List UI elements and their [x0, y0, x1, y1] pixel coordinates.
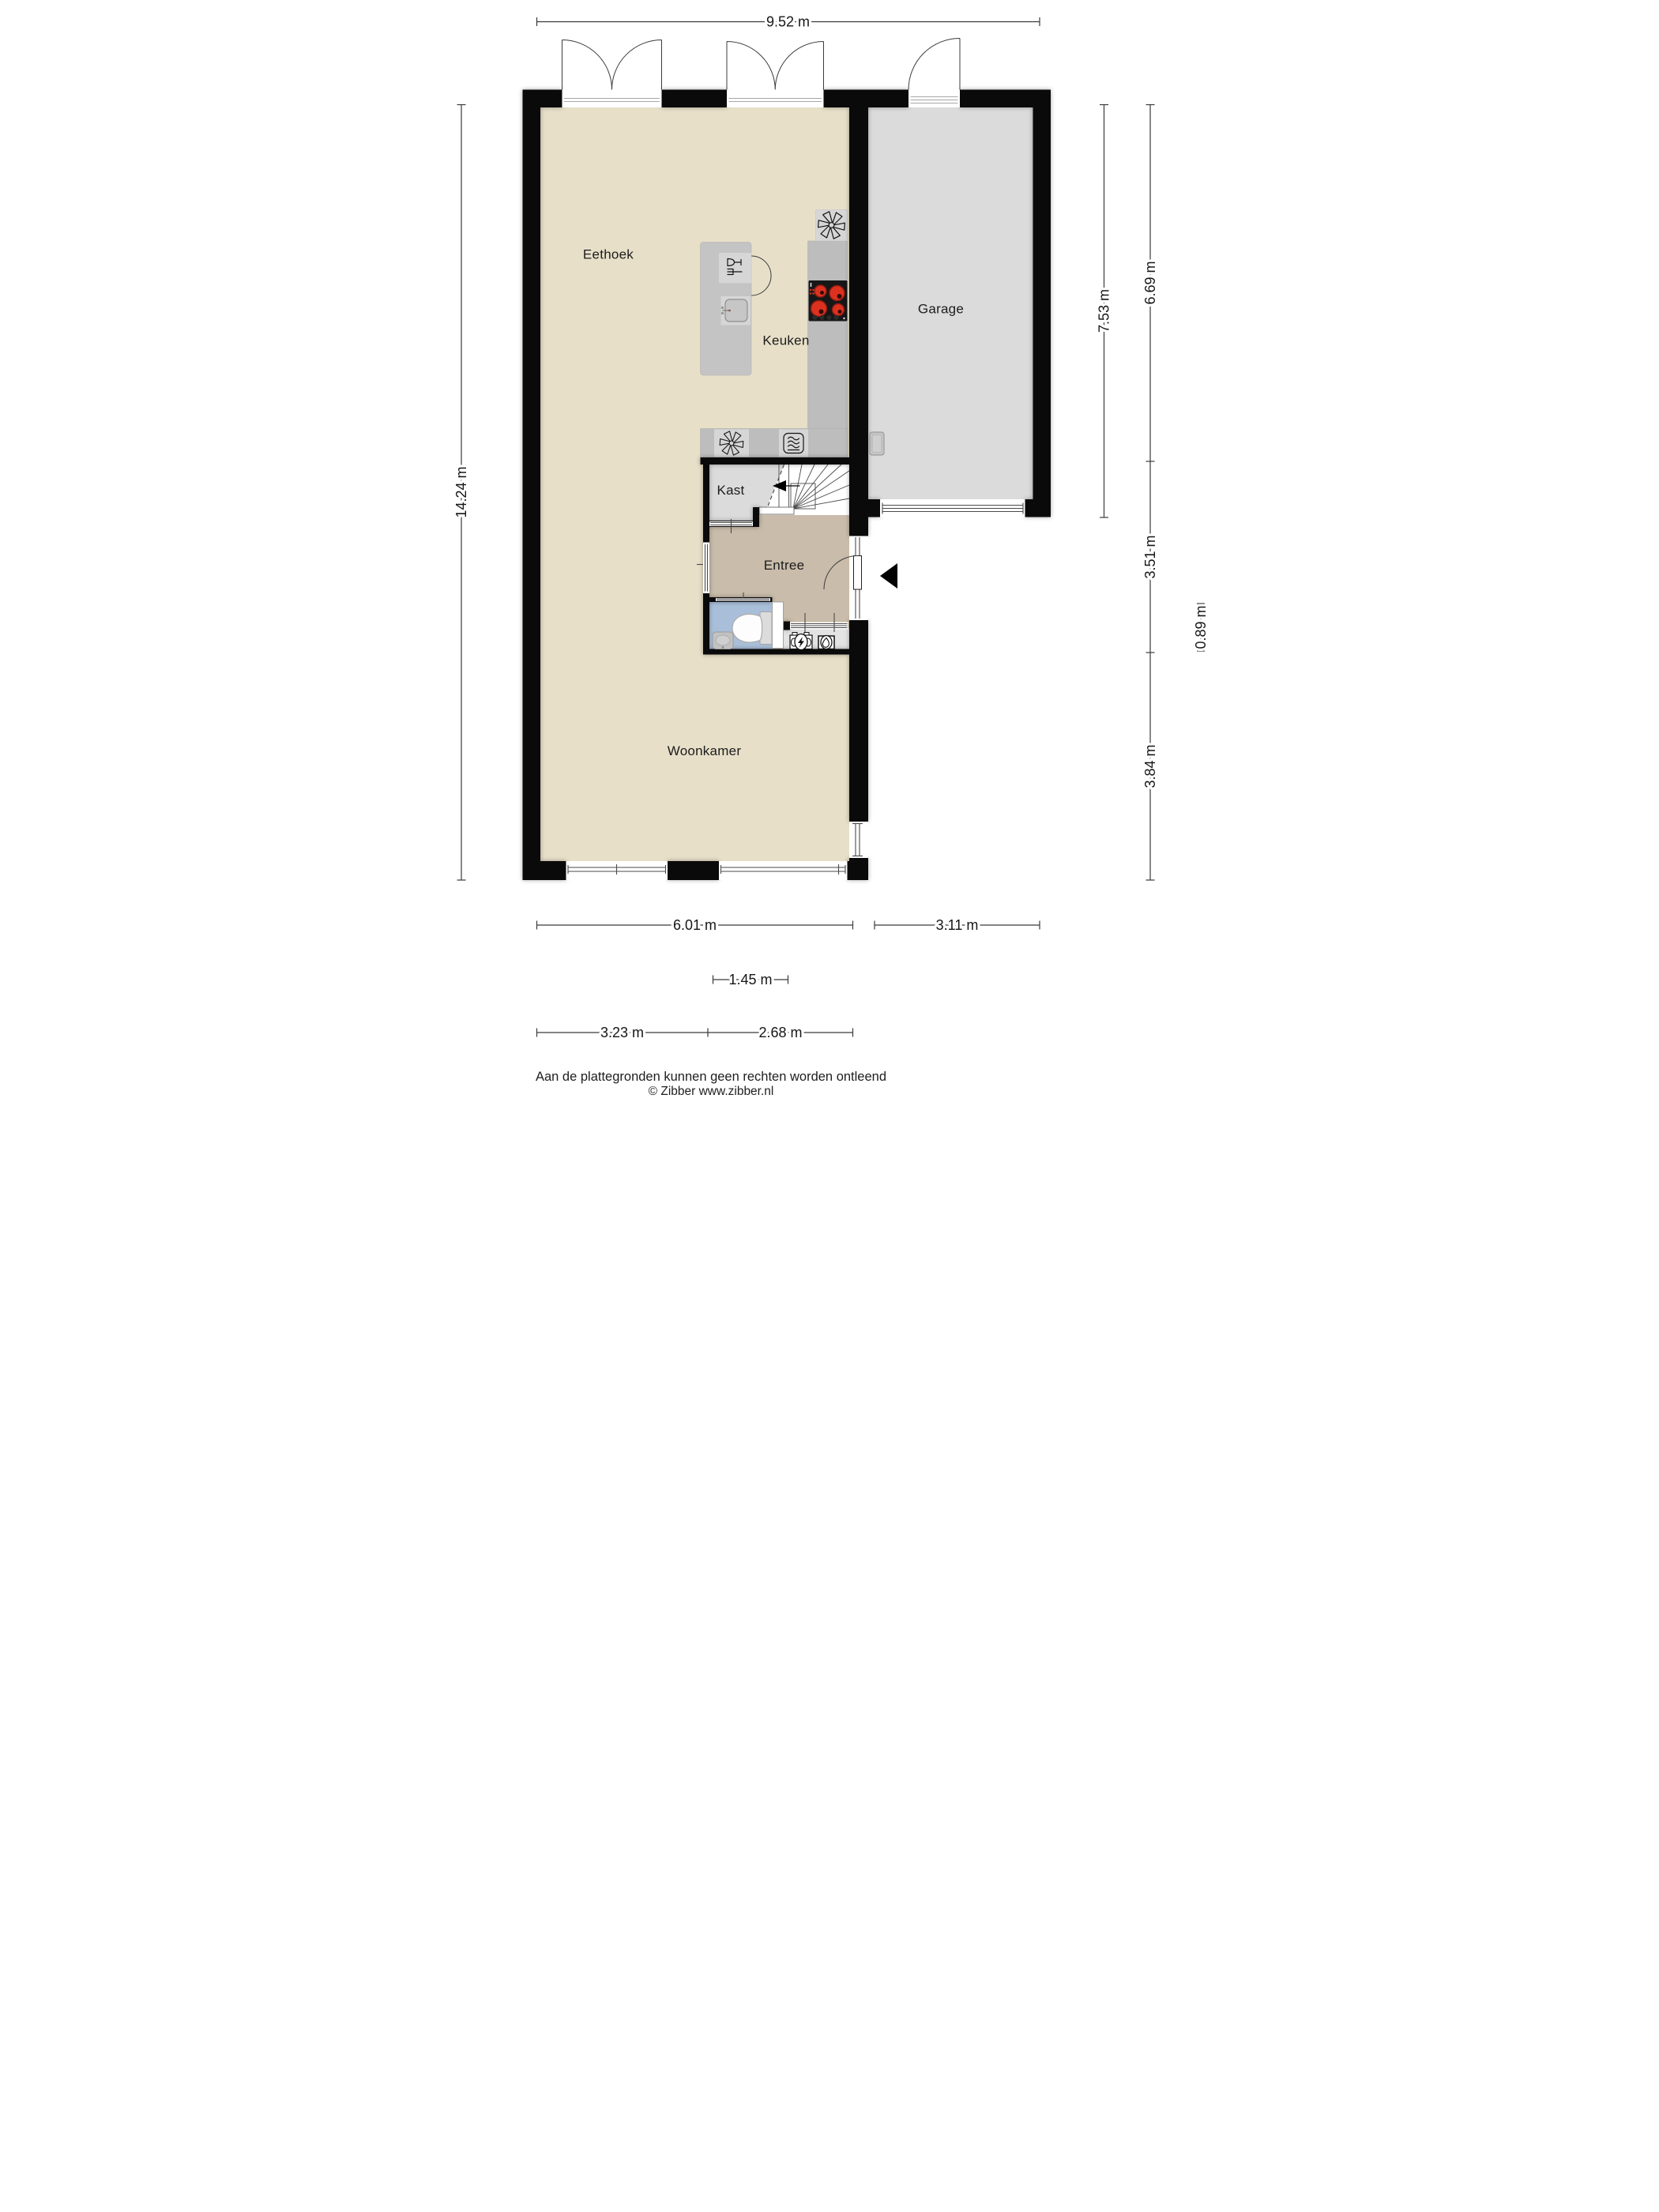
- dim-left-text: 14.24 m: [453, 466, 469, 517]
- wall-garage-east: [1033, 90, 1051, 517]
- window-south-east: [719, 861, 848, 880]
- wall-south-seg2: [668, 861, 719, 880]
- wall-garage-south-corner-right: [1025, 499, 1051, 517]
- wall-stair-stub: [753, 507, 759, 527]
- front-door-leaf: [854, 556, 862, 590]
- boiler-unit-door: [872, 435, 882, 453]
- toilet-bowl-icon: [732, 614, 762, 642]
- dim-right-inner: 7.53 m: [1097, 105, 1112, 518]
- dim-right-bottom-text: 3.84 m: [1142, 744, 1158, 788]
- wall-east-middle: [849, 620, 868, 822]
- window-south-west: [566, 861, 668, 880]
- label-kast: Kast: [717, 483, 744, 498]
- label-keuken: Keuken: [762, 333, 809, 348]
- electric-meter: [790, 633, 812, 650]
- label-garage: Garage: [918, 302, 964, 317]
- dim-bottom-sub-right-text: 2.68 m: [758, 1025, 802, 1040]
- dim-bottom-house: 6.01 m: [537, 917, 853, 933]
- wall-south-seg3: [848, 861, 869, 880]
- dim-bottom-garage: 3.11 m: [875, 917, 1040, 933]
- label-entree: Entree: [764, 558, 805, 573]
- stairs-bottom-step: [759, 507, 794, 514]
- french-doors-west: [562, 40, 662, 108]
- dim-bottom-sub-right: 2.68 m: [708, 1025, 853, 1040]
- dim-top-text: 9.52 m: [766, 14, 810, 30]
- footer: Aan de plattegronden kunnen geen rechten…: [536, 1070, 886, 1098]
- dim-bottom-center: 1.45 m: [713, 972, 788, 987]
- wall-south-seg1: [523, 861, 566, 880]
- footer-credit: © Zibber www.zibber.nl: [649, 1085, 774, 1098]
- extractor-hood: [816, 210, 848, 242]
- toilet-basin: [713, 632, 733, 649]
- dim-bottom-garage-text: 3.11 m: [936, 917, 979, 933]
- wall-meter-cupboard-end: [784, 622, 791, 630]
- dim-right-inner-text: 7.53 m: [1097, 289, 1112, 333]
- dim-right-bottom: 3.84 m: [1142, 653, 1158, 880]
- dim-bottom-house-text: 6.01 m: [673, 917, 717, 933]
- cooktop: [809, 280, 848, 322]
- dim-bottom-center-text: 1.45 m: [728, 972, 772, 987]
- dim-right-top: 6.69 m: [1142, 105, 1158, 462]
- floor-plan-canvas: Eethoek Keuken Garage Kast Entree Woonka…: [415, 0, 1244, 1106]
- wall-kast-north: [701, 457, 850, 465]
- footer-disclaimer: Aan de plattegronden kunnen geen rechten…: [536, 1070, 886, 1084]
- window-east: [849, 822, 868, 858]
- wall-block-south: [703, 649, 849, 655]
- dim-bottom-sub-left-text: 3.23 m: [600, 1025, 644, 1040]
- wall-west: [523, 90, 541, 881]
- wall-north-seg2: [662, 90, 728, 108]
- label-woonkamer: Woonkamer: [668, 743, 742, 758]
- floors: [540, 107, 1033, 861]
- wall-east-upper: [849, 90, 868, 536]
- dim-bottom-sub-left: 3.23 m: [537, 1025, 709, 1040]
- dim-right-top-text: 6.69 m: [1142, 261, 1158, 304]
- dim-top: 9.52 m: [537, 14, 1040, 30]
- dim-right-middle-text: 3.51 m: [1142, 535, 1158, 578]
- water-meter: [818, 636, 834, 649]
- french-doors-east: [727, 42, 824, 108]
- toilet-fixture: [732, 612, 772, 645]
- entrance-arrow-icon: [880, 563, 897, 589]
- dim-right-small: 0.89 m: [1193, 604, 1209, 651]
- dishwasher-unit: [719, 253, 751, 284]
- label-eethoek: Eethoek: [583, 247, 634, 262]
- garage-back-door: [908, 39, 960, 108]
- wall-garage-south-corner-left: [867, 499, 881, 517]
- floor-plan-page: Eethoek Keuken Garage Kast Entree Woonka…: [415, 0, 1244, 1106]
- dim-right-small-text: 0.89 m: [1193, 605, 1209, 649]
- toilet-door-leaf: [773, 602, 784, 649]
- kitchen-counter-east: [808, 241, 848, 457]
- dim-left: 14.24 m: [453, 105, 469, 881]
- wall-north-seg1: [523, 90, 562, 108]
- garage-overhead-door: [880, 499, 1025, 517]
- dim-right-middle: 3.51 m: [1142, 461, 1158, 653]
- extractor-unit-south: [714, 430, 749, 457]
